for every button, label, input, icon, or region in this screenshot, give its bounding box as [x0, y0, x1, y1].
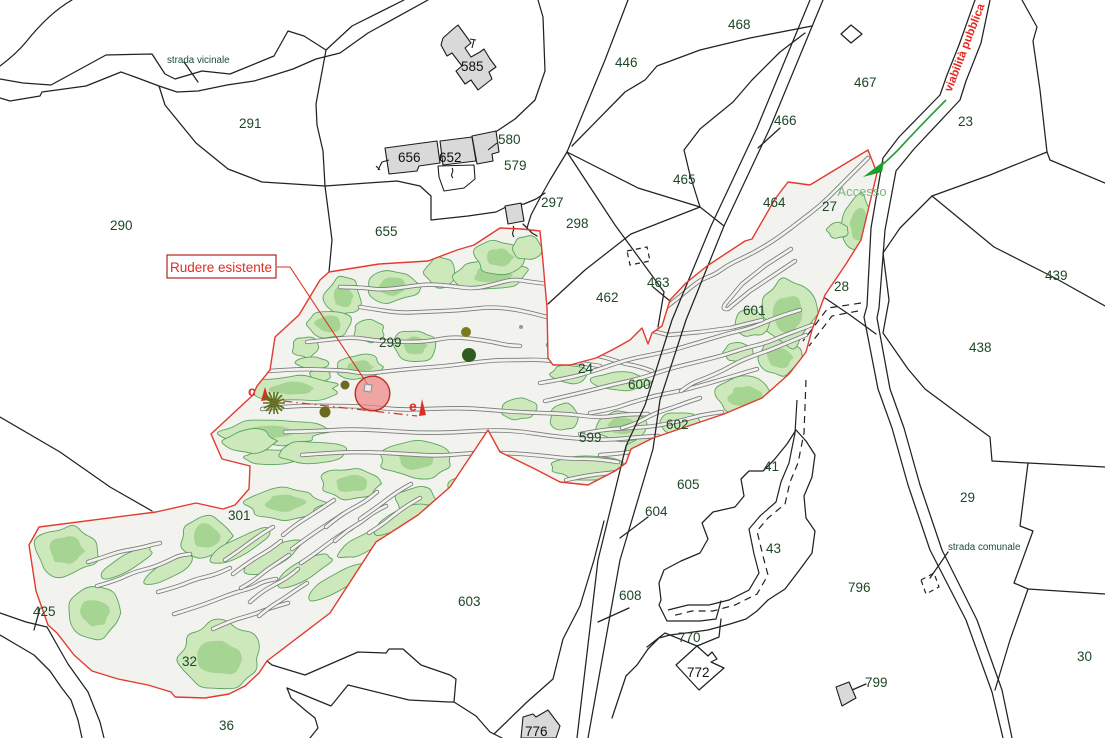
svg-text:463: 463 — [647, 275, 670, 290]
svg-text:Rudere esistente: Rudere esistente — [170, 260, 272, 275]
svg-text:770: 770 — [678, 630, 701, 645]
svg-text:29: 29 — [960, 490, 975, 505]
svg-text:291: 291 — [239, 116, 262, 131]
svg-text:301: 301 — [228, 508, 251, 523]
svg-text:796: 796 — [848, 580, 871, 595]
svg-text:467: 467 — [854, 75, 877, 90]
svg-text:465: 465 — [673, 172, 696, 187]
svg-text:466: 466 — [774, 113, 797, 128]
svg-text:608: 608 — [619, 588, 642, 603]
svg-text:strada comunale: strada comunale — [948, 542, 1021, 553]
svg-text:32: 32 — [182, 654, 197, 669]
svg-text:425: 425 — [33, 604, 56, 619]
svg-text:579: 579 — [504, 158, 527, 173]
svg-text:Accesso: Accesso — [837, 184, 886, 199]
svg-text:772: 772 — [687, 665, 710, 680]
svg-text:36: 36 — [219, 718, 234, 733]
svg-text:strada vicinale: strada vicinale — [167, 55, 230, 66]
svg-text:605: 605 — [677, 477, 700, 492]
svg-text:464: 464 — [763, 195, 786, 210]
svg-text:580: 580 — [498, 132, 521, 147]
svg-text:27: 27 — [822, 199, 837, 214]
svg-text:652: 652 — [439, 150, 462, 165]
svg-text:603: 603 — [458, 594, 481, 609]
svg-text:c: c — [248, 383, 256, 399]
svg-text:585: 585 — [461, 59, 484, 74]
svg-text:655: 655 — [375, 224, 398, 239]
svg-text:41: 41 — [764, 459, 779, 474]
svg-text:602: 602 — [666, 417, 689, 432]
svg-text:601: 601 — [743, 303, 766, 318]
svg-text:438: 438 — [969, 340, 992, 355]
svg-text:23: 23 — [958, 114, 973, 129]
svg-text:462: 462 — [596, 290, 619, 305]
svg-text:30: 30 — [1077, 649, 1092, 664]
svg-text:439: 439 — [1045, 268, 1068, 283]
svg-text:e: e — [409, 398, 417, 414]
svg-text:656: 656 — [398, 150, 421, 165]
svg-text:604: 604 — [645, 504, 668, 519]
svg-text:299: 299 — [379, 335, 402, 350]
svg-text:776: 776 — [525, 724, 548, 738]
svg-text:599: 599 — [579, 430, 602, 445]
svg-text:24: 24 — [578, 361, 594, 376]
svg-text:468: 468 — [728, 17, 751, 32]
svg-text:799: 799 — [865, 675, 888, 690]
svg-text:298: 298 — [566, 216, 589, 231]
svg-text:446: 446 — [615, 55, 638, 70]
svg-text:28: 28 — [834, 279, 849, 294]
svg-text:600: 600 — [628, 377, 651, 392]
svg-text:290: 290 — [110, 218, 133, 233]
svg-text:297: 297 — [541, 195, 564, 210]
svg-text:43: 43 — [766, 541, 781, 556]
